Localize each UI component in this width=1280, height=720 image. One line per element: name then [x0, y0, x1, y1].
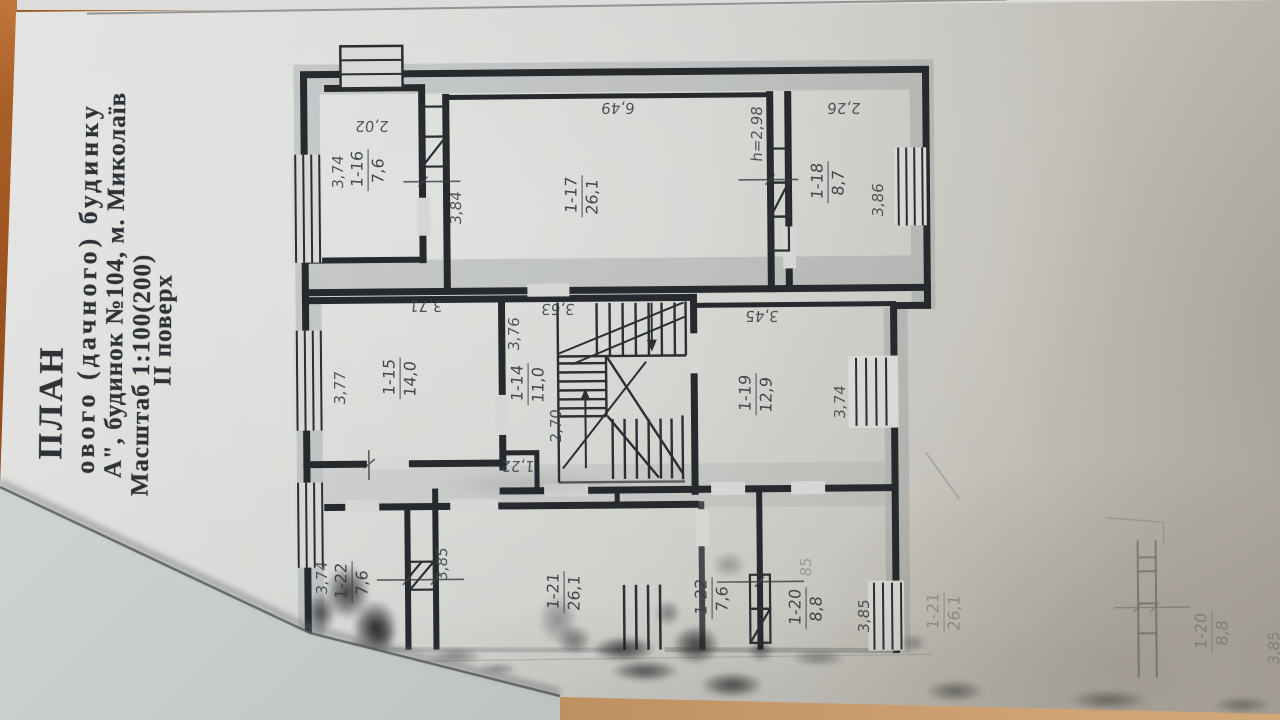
dimension-label: 3,86 [869, 183, 887, 218]
dimension-label: 3,85 [1265, 631, 1280, 666]
room-number: 1-17 [563, 173, 583, 217]
dimension-label: h=2,98 [748, 105, 766, 162]
room-area: 26,1 [945, 594, 964, 631]
room-label: 1-188,7 [809, 159, 848, 205]
room-area: 26,1 [583, 178, 602, 215]
room-area: 8,8 [807, 595, 826, 622]
dimension-label: 3,45 [745, 307, 780, 325]
staircase [557, 301, 687, 482]
room-label: 1-1411,0 [509, 361, 548, 407]
room-label: 1-1514,0 [381, 355, 420, 401]
dimension-label: 3,85 [433, 547, 451, 582]
ghost-room-label: 1-2126,1 [925, 589, 964, 635]
floor-label: ІІ поверх [149, 274, 178, 386]
dimension-label: 3,63 [541, 300, 576, 318]
ghost-room-label: 1-208,8 [1193, 609, 1232, 655]
dimension-label: 3,76 [505, 317, 523, 352]
room-area: 8,7 [829, 169, 848, 196]
plan-heading: ПЛАН [32, 344, 71, 459]
room-label: 1-1726,1 [563, 173, 602, 219]
dimension-label: 3,74 [313, 561, 331, 596]
room-number: 1-21 [545, 569, 565, 613]
room-label: 1-227,6 [693, 575, 732, 621]
room-number: 1-22 [333, 559, 353, 603]
dimension-label: 2,02 [355, 117, 390, 135]
room-number: 1-20 [787, 585, 807, 629]
room-number: 1-18 [809, 159, 829, 203]
room-number: 1-20 [1193, 609, 1213, 653]
room-area: 7,6 [713, 585, 732, 612]
dimension-label: 3,74 [831, 385, 849, 420]
room-label: 1-208,8 [787, 585, 826, 631]
room-label: 1-1912,9 [737, 371, 776, 417]
dimension-label: 6,49 [601, 99, 636, 117]
room-area: 12,9 [757, 376, 776, 413]
room-area: 7,6 [369, 157, 388, 184]
dimension-label: 3,74 [329, 155, 347, 190]
dimension-label: 3,71 [409, 297, 444, 315]
dimension-label: 1,22 [501, 457, 536, 475]
room-area: 26,1 [565, 574, 584, 611]
dimension-label: 2,70 [547, 409, 565, 444]
dimension-label: 85 [797, 557, 815, 578]
room-area: 7,6 [353, 569, 372, 596]
room-number: 1-21 [925, 589, 945, 633]
room-number: 1-16 [349, 147, 369, 191]
room-label: 1-167,6 [349, 147, 388, 193]
dimension-label: 3,77 [331, 371, 349, 406]
room-number: 1-15 [381, 355, 401, 399]
dimension-label: 3,85 [855, 599, 873, 634]
room-number: 1-22 [693, 575, 713, 619]
room-number: 1-19 [737, 371, 757, 415]
room-number: 1-14 [509, 361, 529, 405]
room-label: 1-2126,1 [545, 569, 584, 615]
room-area: 8,8 [1213, 619, 1232, 646]
dimension-label: 3,84 [447, 191, 465, 226]
photo-of-floor-plan: 1-167,61-1726,11-188,71-1514,01-1411,01-… [0, 0, 1280, 720]
dimension-label: 2,26 [827, 99, 862, 117]
room-area: 11,0 [529, 366, 548, 403]
room-area: 14,0 [401, 360, 420, 397]
room-label: 1-227,6 [333, 559, 372, 605]
